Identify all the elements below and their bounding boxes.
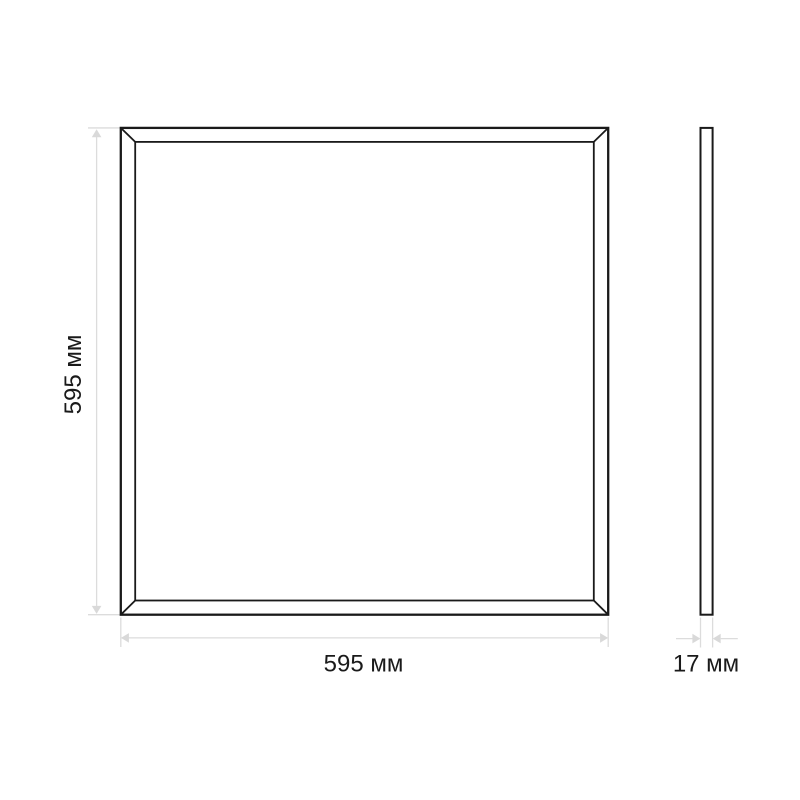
- svg-text:595 мм: 595 мм: [60, 335, 87, 415]
- svg-text:595 мм: 595 мм: [324, 650, 404, 677]
- svg-text:17 мм: 17 мм: [673, 650, 739, 677]
